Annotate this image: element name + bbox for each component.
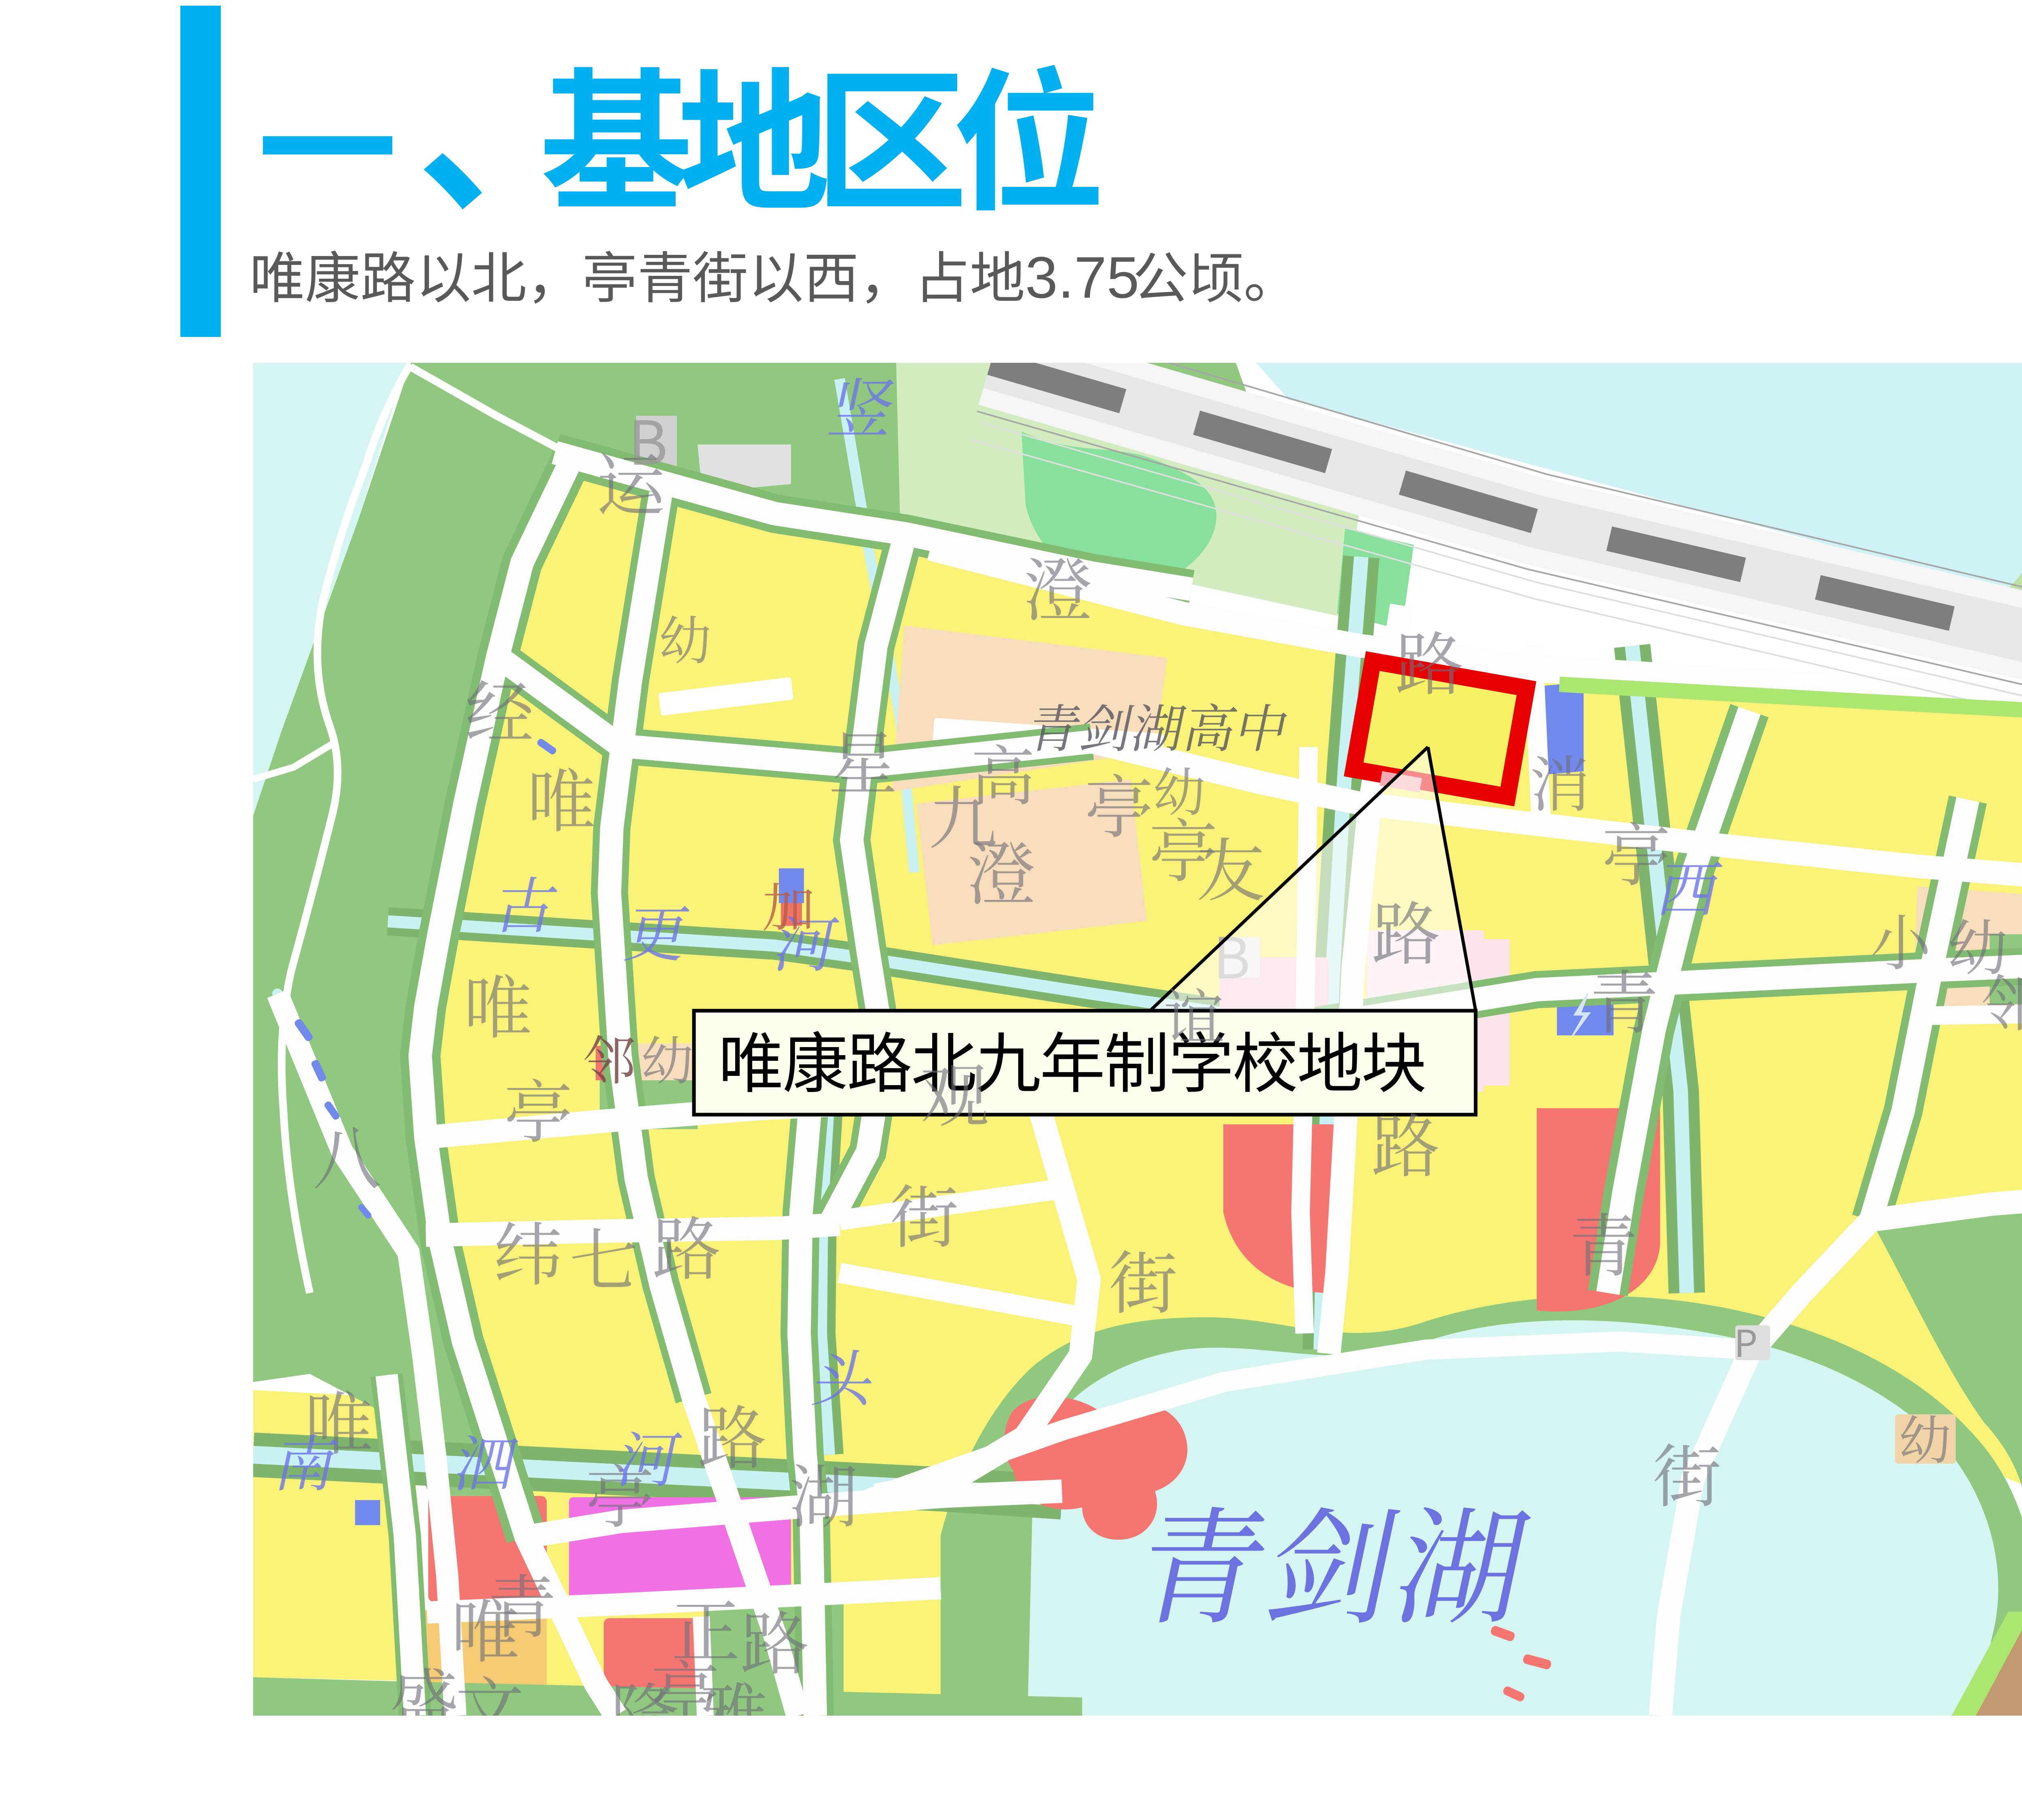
svg-text:3.75: 3.75: [1025, 245, 1139, 310]
